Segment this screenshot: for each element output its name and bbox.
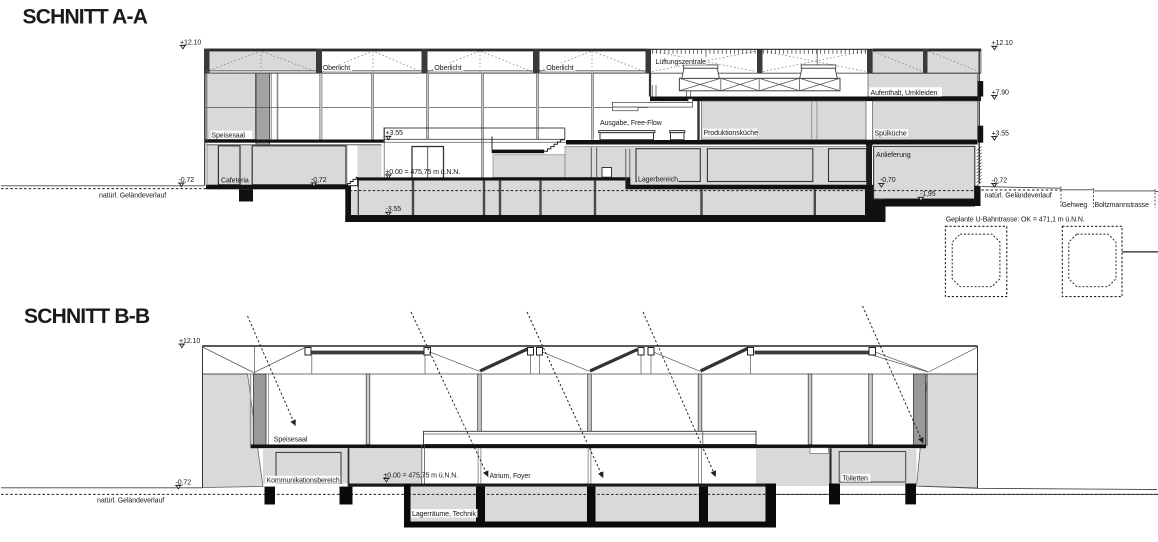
svg-text:Oberlicht: Oberlicht — [434, 65, 461, 72]
svg-text:Boltzmannstrasse: Boltzmannstrasse — [1095, 202, 1150, 209]
svg-text:natürl. Geländeverlauf: natürl. Geländeverlauf — [99, 192, 166, 199]
svg-text:Anlieferung: Anlieferung — [876, 152, 911, 159]
svg-text:natürl. Geländeverlauf: natürl. Geländeverlauf — [97, 498, 164, 505]
svg-text:Toiletten: Toiletten — [843, 476, 869, 483]
svg-text:Speisesaal: Speisesaal — [211, 132, 245, 139]
svg-text:Geplante U-Bahntrasse: OK = 47: Geplante U-Bahntrasse: OK = 471,1 m ü.N.… — [946, 217, 1085, 224]
svg-text:Speisesaal: Speisesaal — [274, 437, 308, 444]
svg-text:SCHNITT A-A: SCHNITT A-A — [23, 6, 148, 29]
svg-text:Oberlicht: Oberlicht — [546, 65, 573, 72]
svg-text:Cafeteria: Cafeteria — [221, 178, 249, 185]
svg-text:Spülküche: Spülküche — [875, 131, 907, 138]
svg-text:natürl. Geländeverlauf: natürl. Geländeverlauf — [985, 193, 1052, 200]
svg-text:±0.00 = 475,75 m ü.N.N.: ±0.00 = 475,75 m ü.N.N. — [384, 472, 459, 479]
svg-text:Kommunikationsbereich: Kommunikationsbereich — [267, 478, 340, 485]
svg-text:Lagerräume, Technik: Lagerräume, Technik — [412, 511, 476, 518]
svg-text:Produktionsküche: Produktionsküche — [704, 130, 759, 137]
svg-text:±0.00 = 475,75 m ü.N.N.: ±0.00 = 475,75 m ü.N.N. — [386, 169, 461, 176]
svg-text:Lagerbereich: Lagerbereich — [638, 177, 678, 184]
svg-text:Atrium, Foyer: Atrium, Foyer — [490, 473, 532, 480]
svg-text:Ausgabe, Free-Flow: Ausgabe, Free-Flow — [600, 120, 663, 127]
svg-text:Oberlicht: Oberlicht — [323, 65, 350, 72]
svg-text:Gehweg: Gehweg — [1062, 202, 1088, 209]
svg-text:SCHNITT B-B: SCHNITT B-B — [24, 305, 150, 328]
svg-text:Aufenthalt, Umkleiden: Aufenthalt, Umkleiden — [871, 90, 938, 97]
svg-text:Lüftungszentrale: Lüftungszentrale — [656, 59, 707, 66]
